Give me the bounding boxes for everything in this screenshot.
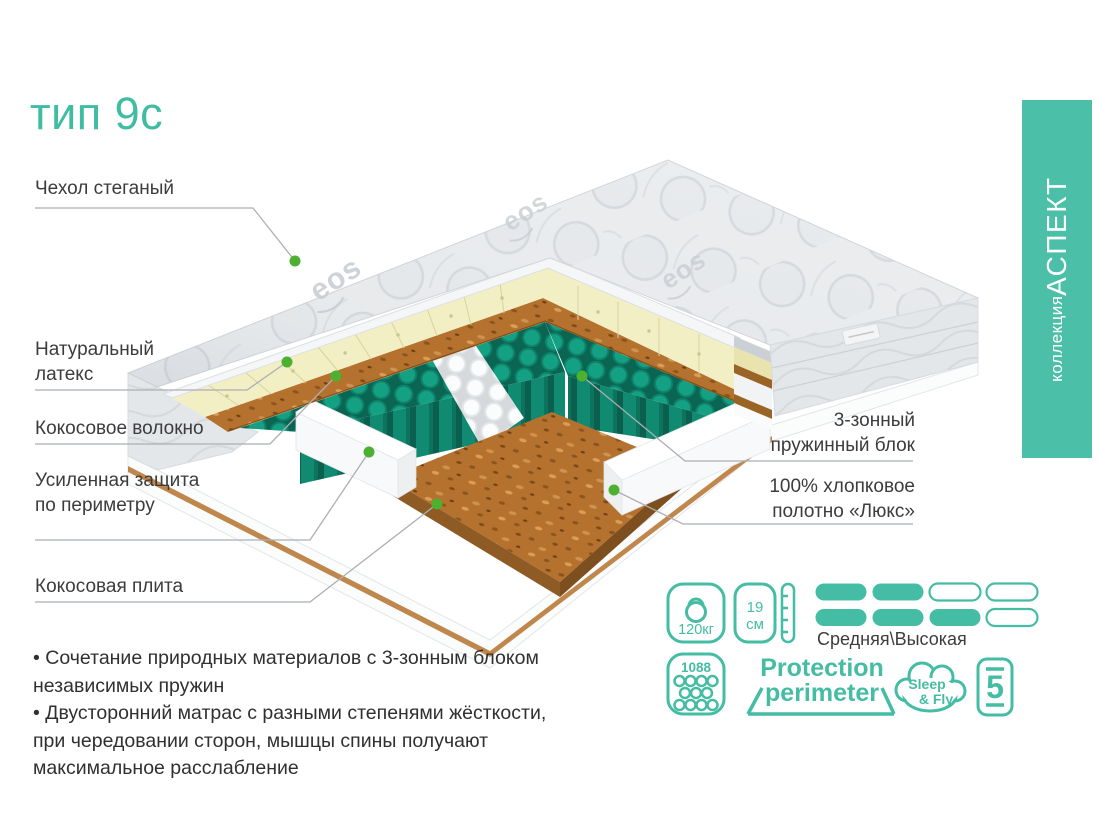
firmness-pill (816, 609, 867, 626)
infographic-page: eos eos eos (0, 0, 1100, 814)
feature-list: Сочетание природных материалов с 3-зонны… (33, 645, 553, 783)
firmness-label: Средняя\Высокая (817, 629, 967, 650)
svg-text:120кг: 120кг (678, 622, 714, 638)
sleep-fly-logo: Sleep & Fly (889, 656, 969, 720)
collection-banner-text: коллекция АСПЕКТ (1041, 176, 1073, 382)
svg-text:Sleep: Sleep (908, 676, 945, 692)
label-coconut-fiber: Кокосовое волокно (35, 416, 204, 441)
label-spring-block: 3-зонный пружинный блок (672, 408, 915, 458)
spring-coils (675, 676, 718, 710)
firmness-pill (873, 584, 924, 601)
feature-item: Сочетание природных материалов с 3-зонны… (33, 645, 553, 700)
springs-count-icon: 1088 (666, 652, 726, 716)
collection-banner: коллекция АСПЕКТ (1022, 100, 1092, 458)
svg-text:5: 5 (986, 669, 1004, 705)
firmness-pill (987, 609, 1038, 626)
firmness-pill (930, 609, 981, 626)
svg-text:19: 19 (747, 599, 764, 616)
label-cover: Чехол стеганый (35, 176, 174, 201)
label-coconut-plate: Кокосовая плита (35, 574, 183, 599)
svg-text:perimeter: perimeter (765, 679, 879, 707)
svg-text:1088: 1088 (681, 660, 712, 675)
svg-text:см: см (746, 616, 764, 633)
ruler-icon (779, 582, 797, 644)
label-cotton-fabric: 100% хлопковое полотно «Люкс» (672, 474, 915, 524)
svg-text:Protection: Protection (760, 654, 884, 682)
warranty-icon: 5 (975, 656, 1015, 720)
svg-text:& Fly: & Fly (919, 691, 953, 707)
max-weight-icon: 120кг (666, 582, 726, 644)
firmness-pill (816, 584, 867, 601)
firmness-pill (873, 609, 924, 626)
label-perimeter-protection: Усиленная защита по периметру (35, 468, 199, 518)
feature-item: Двусторонний матрас с разными степенями … (33, 700, 553, 783)
kettlebell-icon (687, 599, 706, 622)
protection-perimeter-logo: Protection perimeter (742, 650, 898, 720)
firmness-pill (930, 584, 981, 601)
collection-prefix: коллекция (1047, 296, 1067, 382)
page-title: тип 9с (30, 88, 163, 140)
label-latex: Натуральный латекс (35, 337, 154, 387)
firmness-pills (814, 582, 1039, 630)
height-icon: 19 см (733, 582, 777, 644)
collection-name: АСПЕКТ (1041, 176, 1073, 296)
firmness-pill (987, 584, 1038, 601)
